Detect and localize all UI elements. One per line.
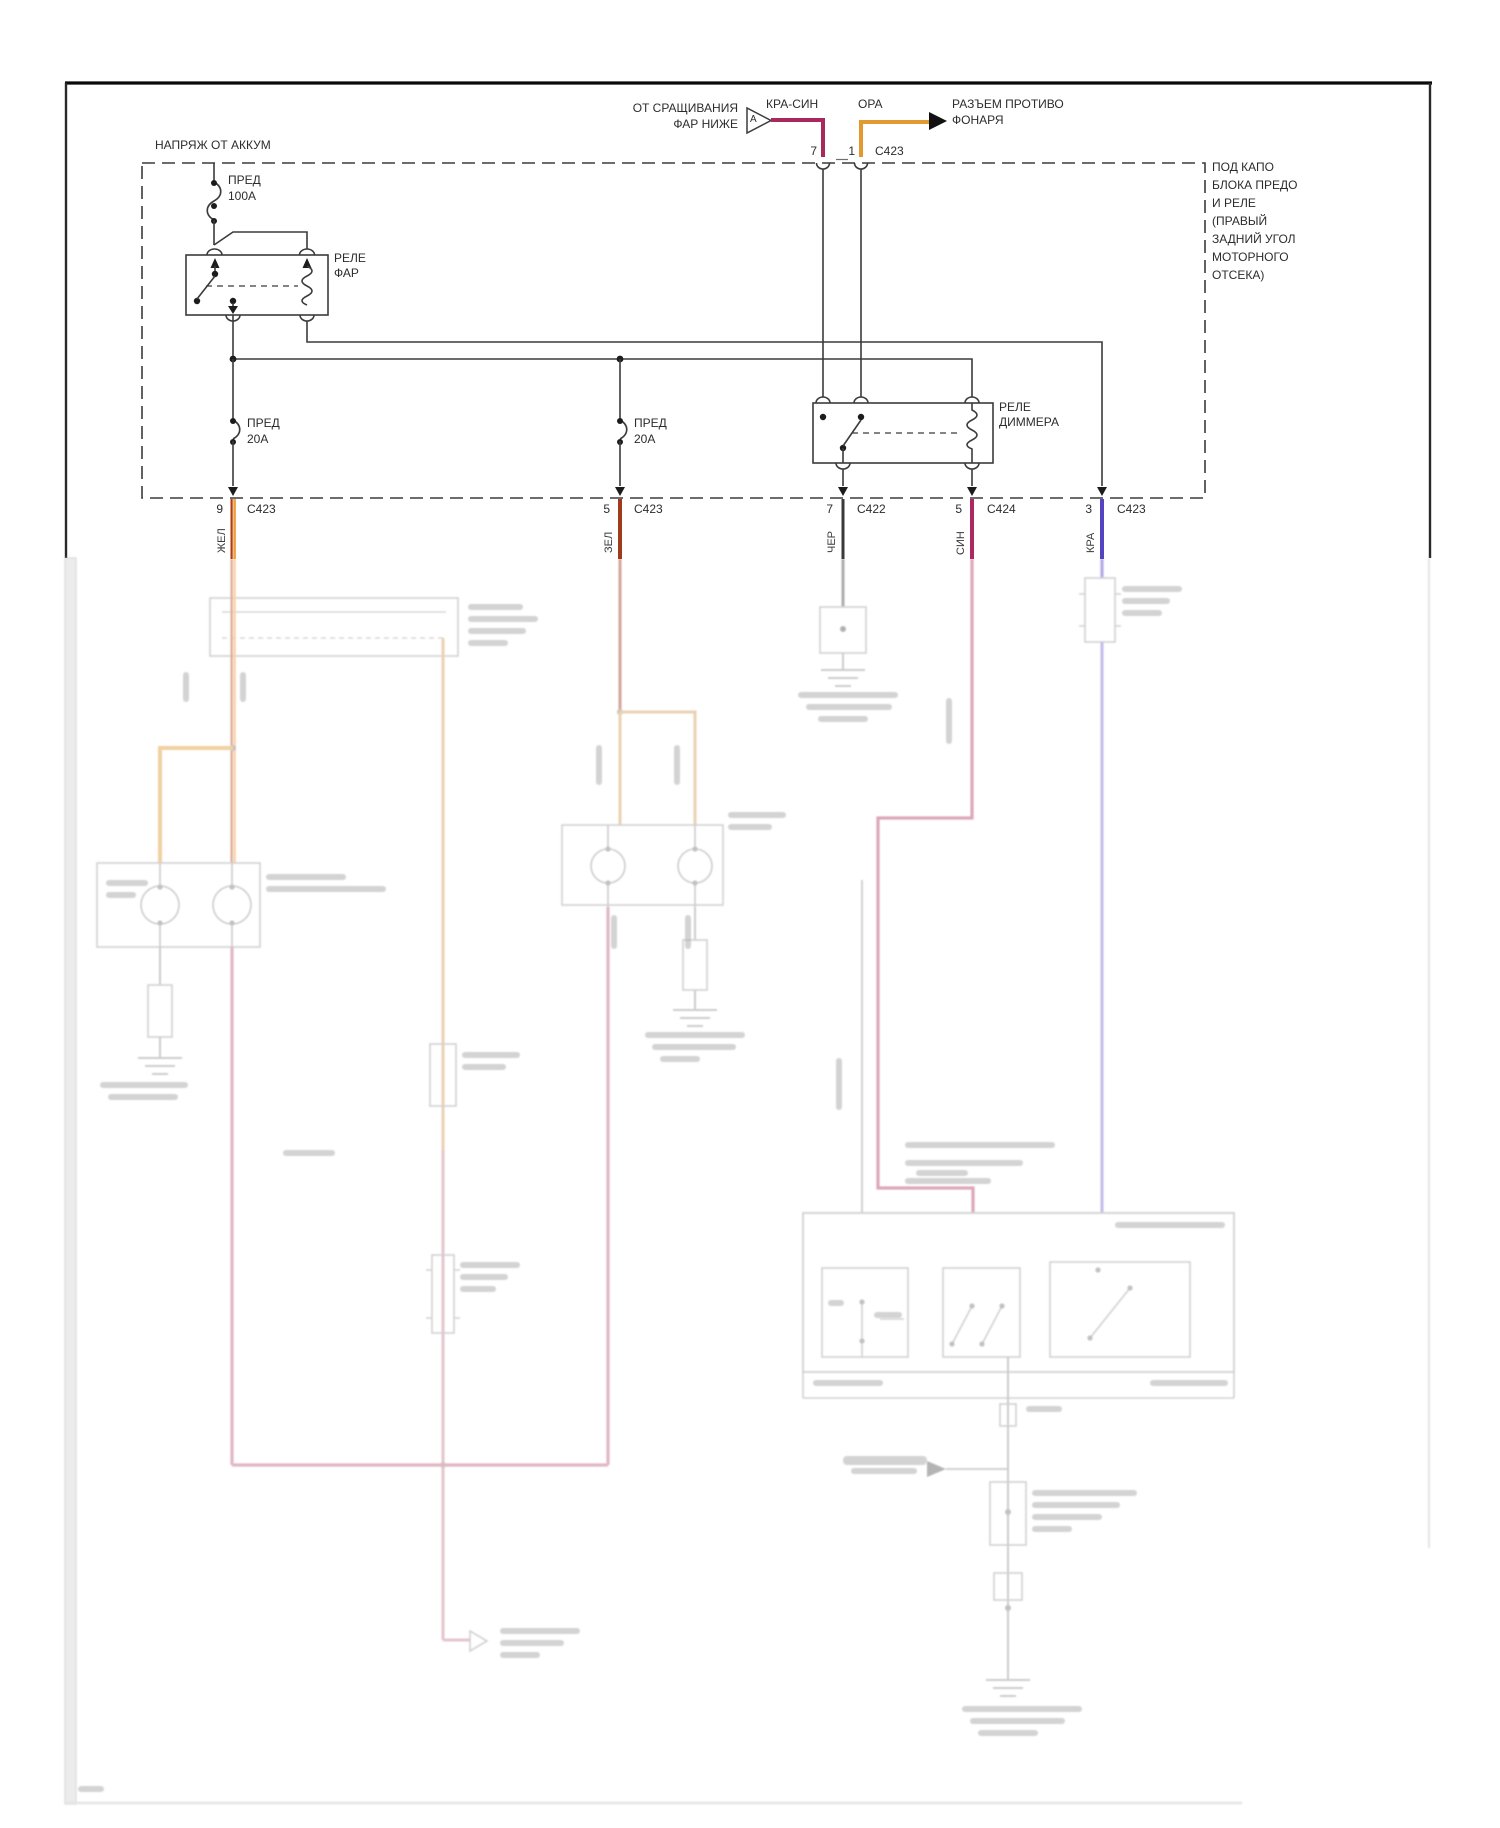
fuse-relay-box-outline [142,163,1205,498]
faded-lamp-circuits-section [65,558,1429,1804]
top-pin-1: 1 [833,144,855,159]
wire-color-zhel: ЖЕЛ [216,528,228,553]
location-note-line: (ПРАВЫЙ [1212,212,1298,230]
wire-label-ora: ОРА [858,97,883,112]
connector-c424: C424 [987,502,1016,517]
wire-label-kra-sin: КРА-СИН [766,97,818,112]
pin-number-7: 7 [809,502,833,517]
location-note-line: МОТОРНОГО [1212,248,1298,266]
wire-color-kra: КРА [1085,533,1097,553]
fuse-20a-mid-label1: ПРЕД [634,416,667,431]
fog-lamp-arrow [929,112,947,130]
wiring-diagram-page: ОТ СРАЩИВАНИЯ ФАР НИЖЕ А КРА-СИН ОРА РАЗ… [0,0,1500,1828]
wire-color-sin: СИН [955,531,967,555]
fuse-20a-left-label1: ПРЕД [247,416,280,431]
fuse-20a-mid-label2: 20А [634,432,655,447]
splice-note-line1: ОТ СРАЩИВАНИЯ [598,101,738,116]
pin-number-3: 3 [1068,502,1092,517]
fog-connector-note-line2: ФОНАРЯ [952,113,1004,128]
location-note-line: ЗАДНИЙ УГОЛ [1212,230,1298,248]
headlamp-relay-label1: РЕЛЕ [334,251,366,266]
fog-connector-note-line1: РАЗЪЕМ ПРОТИВО [952,97,1064,112]
splice-note-line2: ФАР НИЖЕ [598,117,738,132]
power-distribution-schematic [65,83,1432,559]
pin-number-5-left: 5 [586,502,610,517]
connector-c423-mid: C423 [634,502,663,517]
wire-color-cher: ЧЕР [826,531,838,553]
fuse-100a-label1: ПРЕД [228,173,261,188]
connector-c422: C422 [857,502,886,517]
dimmer-relay-label2: ДИММЕРА [999,415,1059,430]
top-pin-7: 7 [795,144,817,159]
dimmer-relay-label1: РЕЛЕ [999,400,1031,415]
location-note-line: ПОД КАПО [1212,158,1298,176]
dimmer-relay-outline [813,403,993,463]
location-note-line: БЛОКА ПРЕДО [1212,176,1298,194]
fuse-20a-left-label2: 20А [247,432,268,447]
location-note-line: ОТСЕКА) [1212,266,1298,284]
connector-c423-left: C423 [247,502,276,517]
top-connector-c423: C423 [875,144,904,159]
fuse-box-title: НАПРЯЖ ОТ АККУМ [155,138,271,153]
fuse-100a-label2: 100А [228,189,256,204]
pin-number-9: 9 [199,502,223,517]
pin-number-5-right: 5 [938,502,962,517]
location-note-line: И РЕЛЕ [1212,194,1298,212]
connector-c423-right: C423 [1117,502,1146,517]
fuse-box-location-note: ПОД КАПО БЛОКА ПРЕДО И РЕЛЕ (ПРАВЫЙ ЗАДН… [1212,158,1298,284]
wire-color-zel: ЗЕЛ [603,532,615,553]
headlamp-relay-label2: ФАР [334,266,359,281]
splice-marker-a: А [750,114,757,125]
